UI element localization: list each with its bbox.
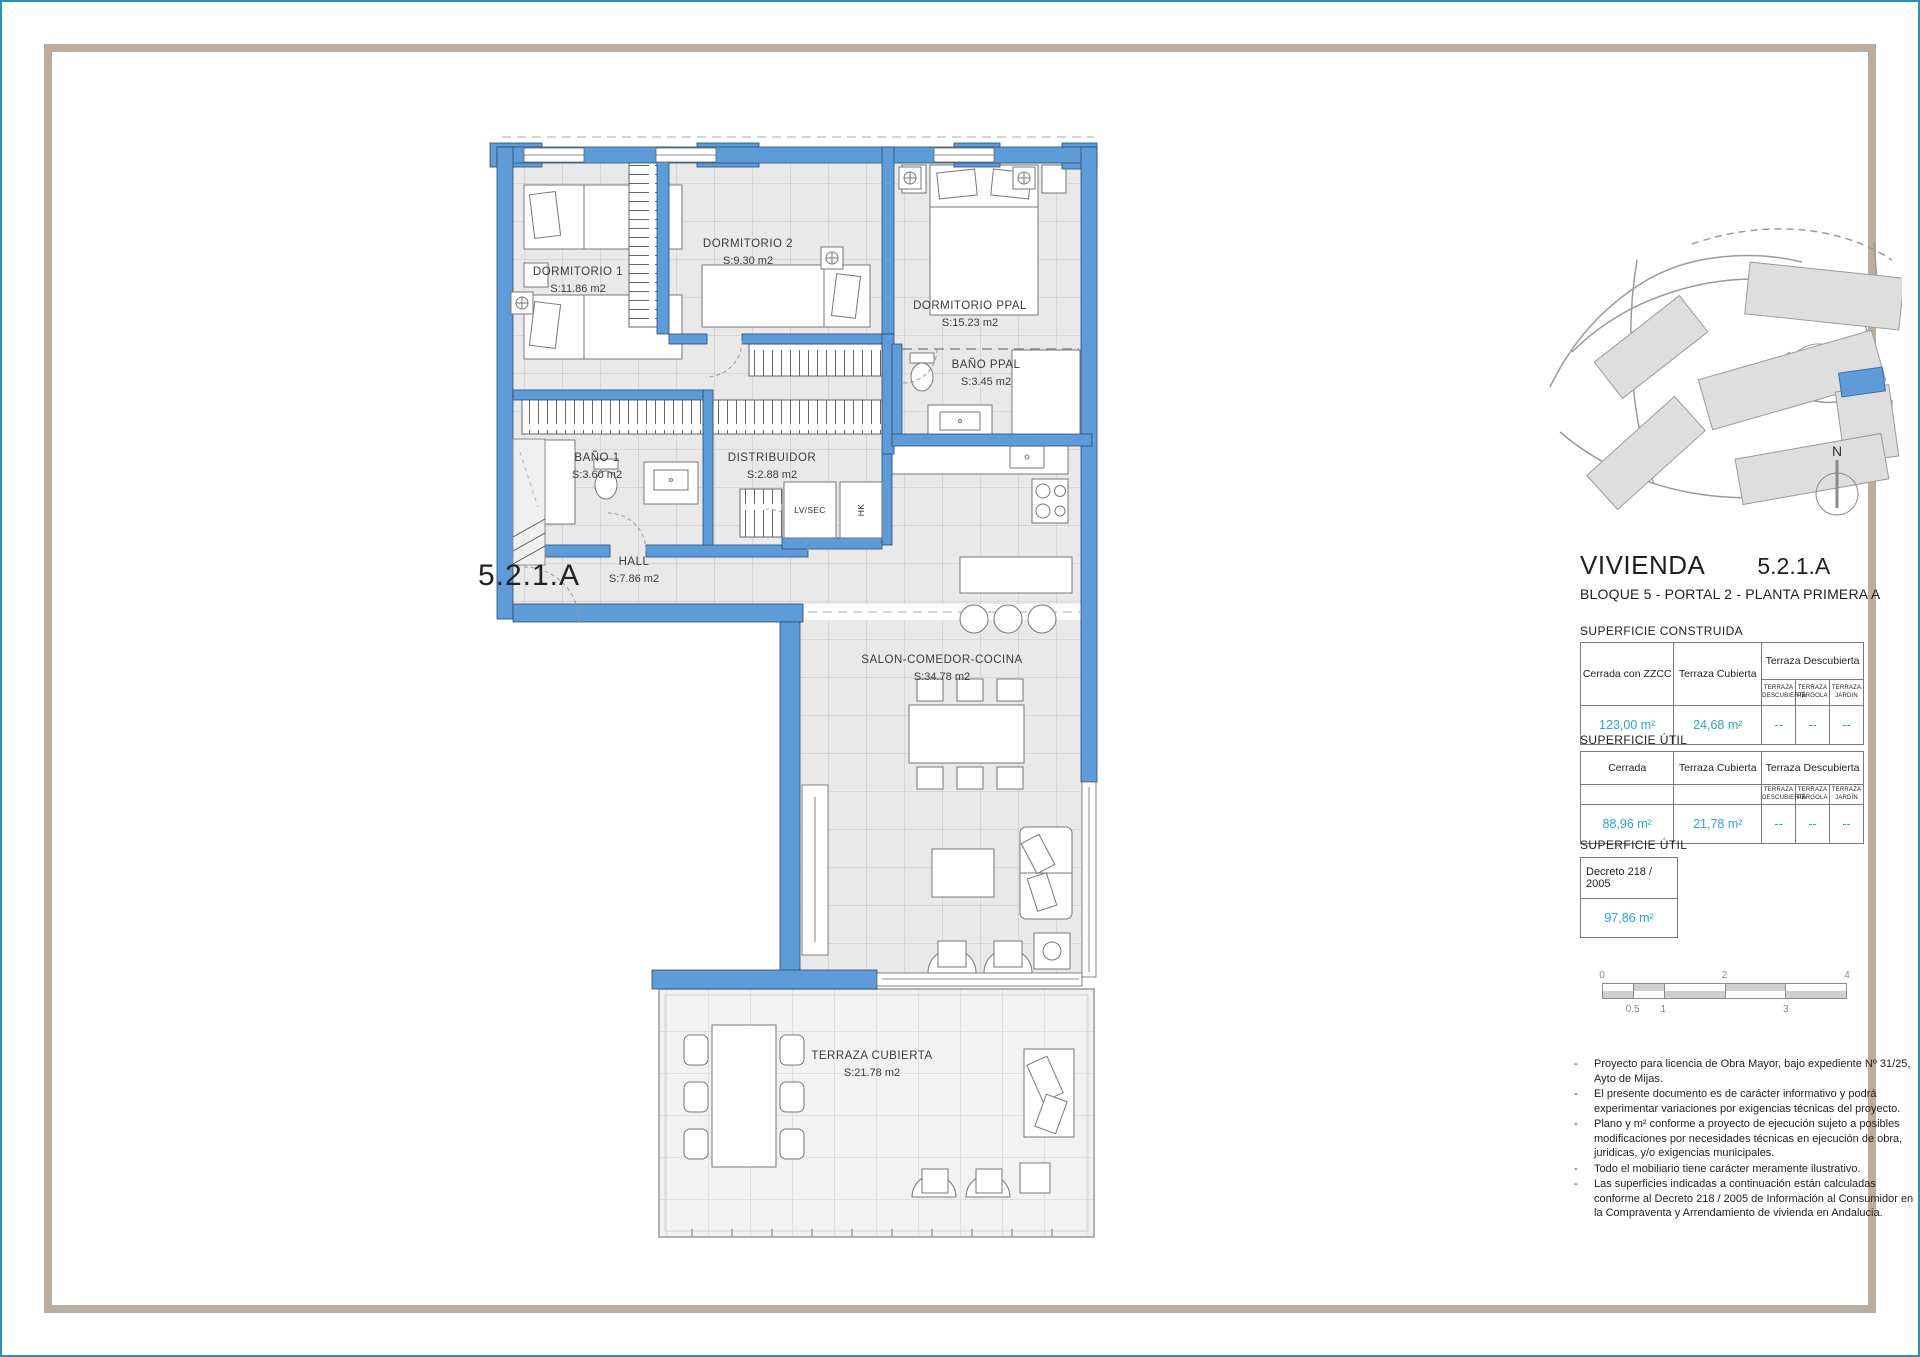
room-area: S:2.88 m2 bbox=[747, 469, 797, 481]
sub-header: TERRAZA DESCUBIERTA bbox=[1762, 785, 1796, 805]
value-cell: -- bbox=[1830, 706, 1864, 745]
value-cell: -- bbox=[1762, 805, 1796, 844]
value-cell: -- bbox=[1830, 805, 1864, 844]
scale-tick-label: 1 bbox=[1660, 1004, 1666, 1015]
value-cell: -- bbox=[1762, 706, 1796, 745]
col-group-header: Terraza Descubierta bbox=[1762, 752, 1864, 785]
notes-block: Proyecto para licencia de Obra Mayor, ba… bbox=[1570, 1057, 1920, 1222]
terrace-table-icon bbox=[684, 1025, 804, 1167]
room-area: S:15.23 m2 bbox=[942, 317, 998, 329]
scale-tick-label: 0 bbox=[1599, 970, 1605, 981]
room-label: DORMITORIO 1 bbox=[533, 266, 623, 278]
superficie-util-table: Cerrada Terraza Cubierta Terraza Descubi… bbox=[1580, 751, 1864, 844]
room-label: HALL bbox=[619, 556, 650, 568]
room-area: S:9.30 m2 bbox=[723, 255, 773, 267]
room-label: TERRAZA CUBIERTA bbox=[811, 1050, 932, 1062]
note-item: Todo el mobiliario tiene carácter merame… bbox=[1570, 1162, 1920, 1177]
scale-tick-label: 4 bbox=[1844, 970, 1850, 981]
col-header: Cerrada bbox=[1581, 752, 1674, 785]
note-item: Las superficies indicadas a continuación… bbox=[1570, 1177, 1920, 1221]
sub-header: TERRAZA JARDIN bbox=[1830, 680, 1864, 706]
decreto-box: Decreto 218 / 2005 97,86 m² bbox=[1580, 857, 1678, 938]
room-label: SALON-COMEDOR-COCINA bbox=[861, 654, 1022, 666]
value-cell: -- bbox=[1796, 706, 1830, 745]
sink-icon bbox=[644, 462, 698, 504]
col-header: Terraza Cubierta bbox=[1674, 752, 1762, 785]
sub-header: TERRAZA JARDÍN bbox=[1830, 785, 1864, 805]
dining-table-icon bbox=[909, 679, 1024, 789]
empty-cell bbox=[1674, 785, 1762, 805]
stove-icon bbox=[1032, 479, 1068, 523]
superficie-util-decreto-label: SUPERFICIE ÚTIL bbox=[1580, 838, 1687, 852]
dwelling-subtitle: BLOQUE 5 - PORTAL 2 - PLANTA PRIMERA A bbox=[1580, 586, 1920, 602]
col-group-header: Terraza Descubierta bbox=[1762, 643, 1864, 680]
dwelling-title: VIVIENDA bbox=[1580, 550, 1705, 581]
shaft-hatch bbox=[513, 439, 545, 565]
empty-cell bbox=[1581, 785, 1674, 805]
room-area: S:11.86 m2 bbox=[550, 283, 605, 295]
room-area: S:34.78 m2 bbox=[914, 671, 970, 683]
side-table-icon bbox=[1034, 933, 1070, 969]
superficie-util-label: SUPERFICIE ÚTIL bbox=[1580, 733, 1687, 747]
scale-tick-label: 0.5 bbox=[1626, 1004, 1640, 1015]
col-header: Terraza Cubierta bbox=[1674, 643, 1762, 706]
room-area: S:3.45 m2 bbox=[961, 376, 1011, 388]
unit-number-label: 5.2.1.A bbox=[478, 559, 580, 592]
room-label: DISTRIBUIDOR bbox=[728, 452, 816, 464]
room-area: S:21.78 m2 bbox=[844, 1067, 900, 1079]
room-label: DORMITORIO 2 bbox=[703, 238, 793, 250]
room-area: S:3.60 m2 bbox=[572, 469, 622, 481]
coffee-table-icon bbox=[932, 849, 994, 897]
site-map: N bbox=[1542, 202, 1902, 532]
room-label: BAÑO 1 bbox=[574, 451, 619, 464]
title-block: VIVIENDA 5.2.1.A BLOQUE 5 - PORTAL 2 - P… bbox=[1580, 550, 1920, 602]
value-cell: -- bbox=[1796, 805, 1830, 844]
decreto-header: Decreto 218 / 2005 bbox=[1581, 858, 1677, 899]
lounge-chair-icon bbox=[1024, 1049, 1074, 1137]
sheet: DORMITORIO 1 S:11.86 m2 DORMITORIO 2 S:9… bbox=[0, 0, 1920, 1357]
note-item: El presente documento es de carácter inf… bbox=[1570, 1087, 1920, 1116]
scale-tick-label: 3 bbox=[1783, 1004, 1789, 1015]
sub-header: TERRAZA PÉRGOLA bbox=[1796, 680, 1830, 706]
floor-plan: DORMITORIO 1 S:11.86 m2 DORMITORIO 2 S:9… bbox=[372, 107, 1242, 1257]
sofa-icon bbox=[1020, 827, 1072, 919]
decreto-value: 97,86 m² bbox=[1581, 899, 1677, 937]
superficie-construida-label: SUPERFICIE CONSTRUIDA bbox=[1580, 624, 1743, 638]
superficie-construida-table: Cerrada con ZZCC Terraza Cubierta Terraz… bbox=[1580, 642, 1864, 745]
note-item: Proyecto para licencia de Obra Mayor, ba… bbox=[1570, 1057, 1920, 1086]
hk-label: HK bbox=[856, 504, 866, 516]
lvsec-label: LV/SEC bbox=[794, 505, 825, 515]
sub-header: TERRAZA PÉRGOLA bbox=[1796, 785, 1830, 805]
room-label: BAÑO PPAL bbox=[952, 358, 1021, 371]
north-label: N bbox=[1832, 443, 1842, 459]
sub-header: TERRAZA DESCUBIERTA bbox=[1762, 680, 1796, 706]
note-item: Plano y m² conforme a proyecto de ejecuc… bbox=[1570, 1117, 1920, 1161]
room-label: DORMITORIO PPAL bbox=[913, 300, 1027, 312]
scale-tick-label: 2 bbox=[1722, 970, 1728, 981]
room-area: S:7.86 m2 bbox=[609, 573, 659, 585]
scale-bar: 0 2 4 0.5 1 3 bbox=[1602, 970, 1847, 1016]
bed-icon bbox=[702, 265, 870, 327]
scale-bar-segments bbox=[1602, 983, 1847, 999]
toilet-icon bbox=[910, 353, 934, 391]
col-header: Cerrada con ZZCC bbox=[1581, 643, 1674, 706]
dwelling-unit: 5.2.1.A bbox=[1757, 553, 1830, 580]
